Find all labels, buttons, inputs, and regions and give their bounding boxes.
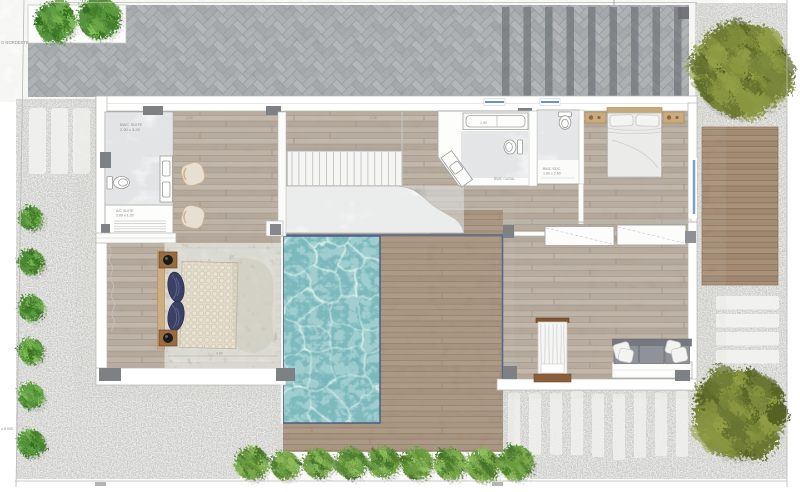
svg-text:PLANTA HUMANIZADA: PLANTA HUMANIZADA <box>656 218 693 222</box>
svg-text:2.90 x 3.20: 2.90 x 3.20 <box>120 127 141 132</box>
svg-text:BWC CASAL: BWC CASAL <box>494 177 515 181</box>
svg-text:4.35: 4.35 <box>370 116 377 120</box>
svg-text:4.60: 4.60 <box>216 352 223 356</box>
svg-text:o 6.000: o 6.000 <box>1 427 13 431</box>
svg-text:1.90: 1.90 <box>480 121 487 125</box>
svg-text:A/C SUITE: A/C SUITE <box>116 209 134 213</box>
svg-text:O NORDESTE: O NORDESTE <box>1 40 29 45</box>
svg-text:1.60 x 2.60: 1.60 x 2.60 <box>543 172 561 176</box>
svg-text:2.90 x 1.00: 2.90 x 1.00 <box>116 214 134 218</box>
svg-text:4.60: 4.60 <box>186 116 193 120</box>
svg-text:BWC SOC.: BWC SOC. <box>543 167 561 171</box>
